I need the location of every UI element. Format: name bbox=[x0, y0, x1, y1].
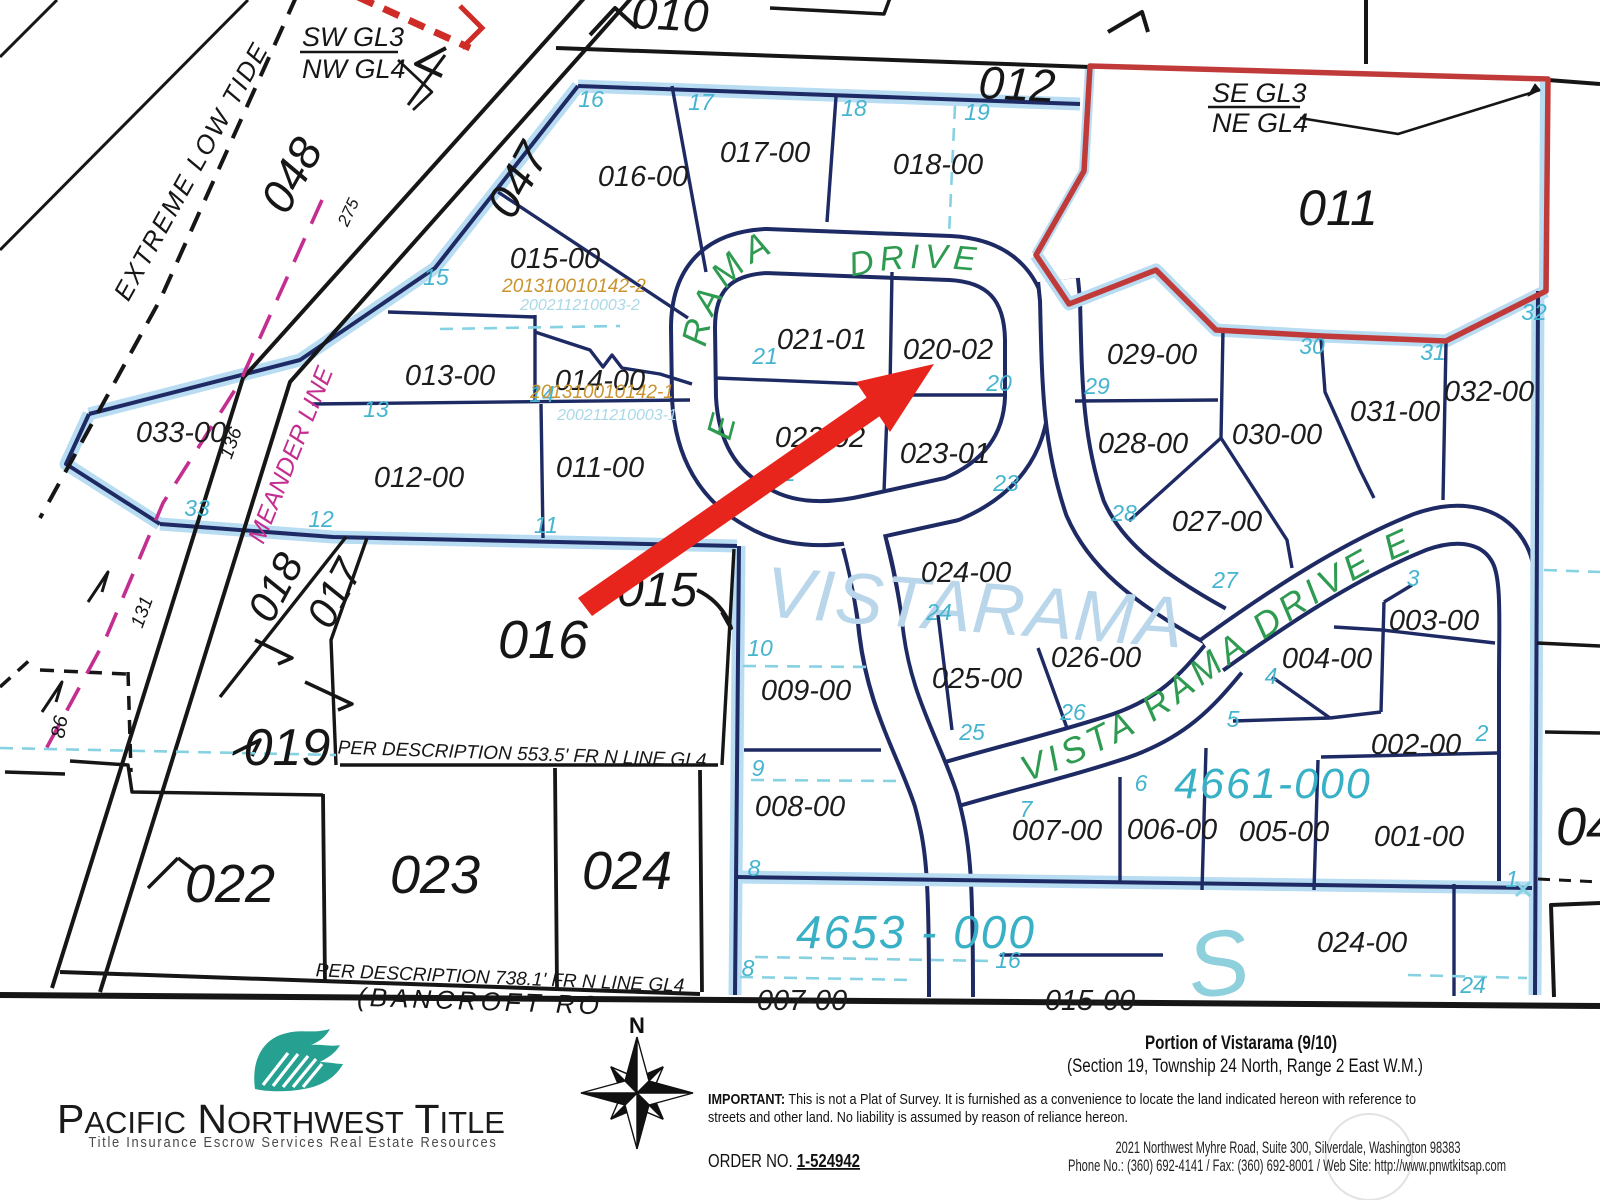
svg-text:NE GL4: NE GL4 bbox=[1212, 108, 1308, 138]
svg-text:016: 016 bbox=[498, 610, 589, 670]
svg-text:011: 011 bbox=[1298, 180, 1378, 236]
svg-text:020-02: 020-02 bbox=[903, 334, 993, 366]
svg-text:011-00: 011-00 bbox=[556, 452, 644, 484]
svg-text:015-00: 015-00 bbox=[510, 243, 600, 275]
svg-text:30: 30 bbox=[1299, 333, 1325, 359]
svg-text:012-00: 012-00 bbox=[374, 462, 464, 494]
svg-text:007-00: 007-00 bbox=[757, 985, 847, 1017]
svg-text:7: 7 bbox=[1020, 796, 1034, 822]
svg-text:027-00: 027-00 bbox=[1172, 506, 1262, 538]
svg-text:013-00: 013-00 bbox=[405, 360, 495, 392]
svg-text:SW GL3: SW GL3 bbox=[302, 22, 404, 52]
svg-text:31: 31 bbox=[1420, 339, 1446, 365]
svg-text:049: 049 bbox=[1556, 797, 1600, 857]
svg-text:29: 29 bbox=[1083, 373, 1110, 399]
svg-text:SE GL3: SE GL3 bbox=[1212, 78, 1307, 108]
svg-text:017-00: 017-00 bbox=[720, 137, 810, 169]
svg-text:24: 24 bbox=[925, 599, 952, 625]
svg-text:024-00: 024-00 bbox=[921, 557, 1011, 589]
svg-text:023: 023 bbox=[390, 845, 480, 905]
svg-text:28: 28 bbox=[1110, 500, 1137, 526]
svg-text:19: 19 bbox=[964, 99, 990, 125]
svg-text:8: 8 bbox=[748, 855, 761, 881]
svg-text:25: 25 bbox=[958, 719, 985, 745]
svg-text:13: 13 bbox=[363, 396, 389, 422]
svg-text:1: 1 bbox=[1506, 866, 1519, 892]
svg-text:21: 21 bbox=[751, 343, 778, 369]
svg-text:032-00: 032-00 bbox=[1444, 376, 1534, 408]
svg-text:006-00: 006-00 bbox=[1127, 814, 1217, 846]
svg-text:9: 9 bbox=[752, 755, 765, 781]
svg-text:18: 18 bbox=[841, 95, 867, 121]
svg-text:201310010142-2: 201310010142-2 bbox=[501, 276, 646, 297]
svg-text:009-00: 009-00 bbox=[761, 675, 851, 707]
svg-text:200211210003-1: 200211210003-1 bbox=[556, 407, 677, 424]
svg-text:2: 2 bbox=[1475, 720, 1489, 746]
svg-text:025-00: 025-00 bbox=[932, 663, 1022, 695]
svg-text:030-00: 030-00 bbox=[1232, 419, 1322, 451]
svg-text:015-00: 015-00 bbox=[1045, 985, 1135, 1017]
svg-text:10: 10 bbox=[747, 635, 773, 661]
svg-text:17: 17 bbox=[688, 89, 715, 115]
svg-text:016-00: 016-00 bbox=[598, 161, 688, 193]
svg-text:024-00: 024-00 bbox=[1317, 927, 1407, 959]
svg-text:streets and other land. No li: streets and other land. No liability is … bbox=[708, 1109, 1128, 1126]
svg-text:4661-000: 4661-000 bbox=[1174, 760, 1372, 808]
svg-text:5: 5 bbox=[1227, 706, 1240, 732]
svg-text:008-00: 008-00 bbox=[755, 791, 845, 823]
svg-text:11: 11 bbox=[534, 512, 558, 538]
svg-text:(Section 19, Township 24 North: (Section 19, Township 24 North, Range 2 … bbox=[1067, 1056, 1423, 1077]
svg-text:15: 15 bbox=[423, 264, 449, 290]
svg-text:NW GL4: NW GL4 bbox=[302, 54, 406, 84]
svg-text:033-00: 033-00 bbox=[136, 417, 226, 449]
svg-text:3: 3 bbox=[1407, 565, 1420, 591]
svg-text:4653 - 000: 4653 - 000 bbox=[796, 906, 1036, 958]
svg-text:N: N bbox=[629, 1013, 645, 1038]
svg-text:2021 Northwest Myhre Road, Sui: 2021 Northwest Myhre Road, Suite 300, Si… bbox=[1116, 1139, 1461, 1157]
svg-text:Title Insurance Escrow Servi: Title Insurance Escrow Services Real Est… bbox=[89, 1134, 498, 1151]
svg-text:16: 16 bbox=[578, 86, 604, 112]
svg-text:ORDER NO. 1-524942: ORDER NO. 1-524942 bbox=[708, 1151, 860, 1171]
svg-text:200211210003-2: 200211210003-2 bbox=[519, 297, 640, 314]
svg-text:021-01: 021-01 bbox=[777, 324, 867, 356]
svg-text:019: 019 bbox=[244, 719, 331, 777]
svg-text:4: 4 bbox=[1265, 663, 1278, 689]
svg-text:029-00: 029-00 bbox=[1107, 339, 1197, 371]
svg-text:Portion of Vistarama (9/10): Portion of Vistarama (9/10) bbox=[1145, 1033, 1337, 1054]
svg-text:023-01: 023-01 bbox=[900, 438, 990, 470]
svg-text:022: 022 bbox=[185, 854, 275, 914]
svg-text:031-00: 031-00 bbox=[1350, 396, 1440, 428]
svg-text:IMPORTANT: This is not a Plat: IMPORTANT: This is not a Plat of Survey.… bbox=[708, 1091, 1416, 1108]
svg-text:005-00: 005-00 bbox=[1239, 816, 1329, 848]
svg-text:002-00: 002-00 bbox=[1371, 729, 1461, 761]
svg-text:20: 20 bbox=[985, 370, 1012, 396]
svg-text:6: 6 bbox=[1135, 770, 1148, 796]
svg-text:24: 24 bbox=[1459, 972, 1486, 998]
svg-text:010: 010 bbox=[630, 0, 710, 42]
svg-text:26: 26 bbox=[1059, 699, 1086, 725]
svg-text:12: 12 bbox=[308, 506, 334, 532]
svg-text:32: 32 bbox=[1521, 299, 1547, 325]
svg-text:028-00: 028-00 bbox=[1098, 428, 1188, 460]
svg-text:Phone No.: (360) 692-4141 / Fa: Phone No.: (360) 692-4141 / Fax: (360) 6… bbox=[1068, 1157, 1506, 1175]
svg-text:004-00: 004-00 bbox=[1282, 643, 1372, 675]
svg-text:001-00: 001-00 bbox=[1374, 821, 1464, 853]
svg-text:8: 8 bbox=[742, 955, 755, 981]
svg-text:026-00: 026-00 bbox=[1051, 642, 1141, 674]
svg-text:201310010142-1: 201310010142-1 bbox=[529, 382, 674, 403]
svg-text:018-00: 018-00 bbox=[893, 149, 983, 181]
svg-text:23: 23 bbox=[992, 470, 1019, 496]
svg-text:024: 024 bbox=[582, 841, 672, 901]
svg-text:27: 27 bbox=[1211, 567, 1239, 593]
svg-text:33: 33 bbox=[184, 495, 210, 521]
svg-text:003-00: 003-00 bbox=[1389, 605, 1479, 637]
